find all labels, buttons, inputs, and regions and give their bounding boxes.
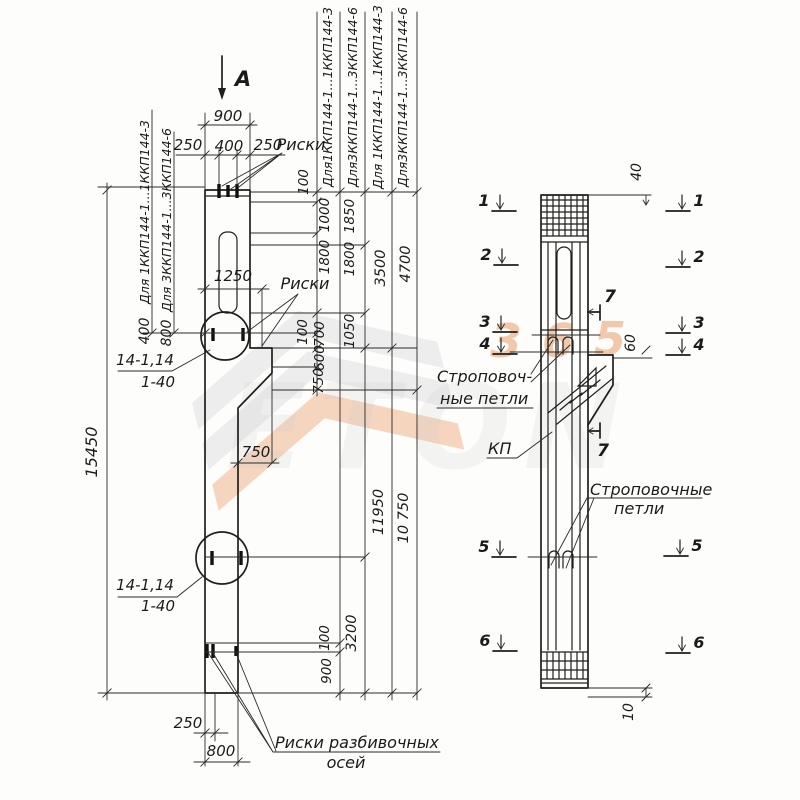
dim-600: 600 — [312, 345, 328, 371]
section-marker-digit: 5 — [478, 537, 489, 556]
drawing-sheet: ETON 365 — [0, 0, 800, 800]
label-lifting-loops-1a: Строповоч- — [437, 367, 532, 386]
dim-1250: 1250 — [214, 267, 252, 285]
section-marker-5-right: 5 — [664, 536, 703, 556]
section-marker-digit: 3 — [479, 312, 490, 331]
dim-top-250-left: 250 — [174, 136, 203, 154]
section-marker-digit: 4 — [478, 334, 490, 353]
dim-1000: 1000 — [317, 198, 333, 232]
riski-top-leaders — [222, 153, 282, 189]
section-marker-2-left: 2 — [480, 245, 518, 265]
left-guideline-1-value: 400 — [137, 318, 153, 345]
dim-100-top: 100 — [296, 169, 312, 195]
chain-label-4: Для3ККП144-1...3ККП144-6 — [395, 7, 410, 188]
dim-10750: 10 750 — [396, 493, 412, 544]
label-riski-middle: Риски — [281, 274, 330, 293]
dim-top-400: 400 — [215, 137, 244, 155]
section-marker-6-left: 6 — [479, 631, 517, 651]
section-7-label-b: 7 — [597, 441, 609, 461]
section-7-label-a: 7 — [604, 287, 616, 307]
dim-40-graphics — [588, 195, 651, 205]
bottom-risk-marks — [207, 644, 236, 658]
dim-bottom-800: 800 — [207, 742, 236, 760]
watermark-digit: 3 — [490, 314, 522, 368]
label-riski-axes-line2: осей — [327, 753, 366, 772]
section-marker-digit: 1 — [478, 191, 489, 210]
watermark: ETON 365 — [176, 280, 634, 511]
section-marker-digit: 3 — [693, 313, 704, 332]
section-marker-digit: 6 — [693, 633, 704, 652]
section-marker-4-right: 4 — [666, 335, 705, 355]
left-guideline-2-label: Для 3ККП144-1...3ККП144-6 — [159, 128, 174, 313]
dim-11950: 11950 — [371, 489, 387, 535]
section-marker-digit: 5 — [691, 536, 702, 555]
section-marker-3-right: 3 — [666, 313, 705, 333]
label-lifting-loops-2a: Строповочные — [590, 480, 712, 499]
dim-900-bottom: 900 — [319, 658, 335, 684]
label-lifting-loops-1b: ные петли — [440, 389, 528, 408]
section-marker-5-left: 5 — [478, 537, 516, 557]
detail-2-scale: 1-40 — [141, 597, 175, 615]
left-guideline-1-label: Для 1ККП144-1...1ККП144-3 — [137, 120, 152, 305]
dim-1800-b: 1800 — [342, 242, 358, 276]
chain-label-1: Для1ККП144-1...1ККП144-3 — [320, 7, 335, 188]
dim-100-mid: 100 — [295, 319, 311, 345]
view-direction-arrow — [218, 56, 226, 100]
dim-overall-15450: 15450 — [82, 427, 101, 478]
chain-label-2: Для3ККП144-1...3ККП144-6 — [345, 7, 360, 188]
section-marker-digit: 4 — [692, 335, 704, 354]
section-marker-digit: 2 — [480, 245, 491, 264]
section-marker-2-right: 2 — [666, 247, 705, 267]
dim-100-bottom: 100 — [317, 625, 333, 651]
dim-1800-a: 1800 — [317, 240, 333, 274]
dim-console-750: 750 — [242, 443, 271, 461]
dim-bottom-250: 250 — [174, 714, 203, 732]
detail-2-mark: 14-1,14 — [116, 576, 174, 594]
label-kp: КП — [488, 439, 511, 458]
detail-1-mark: 14-1,14 — [116, 351, 174, 369]
bottom-reinforcement-ties — [541, 652, 588, 679]
side-view-slot — [557, 247, 571, 319]
section-marker-1-right: 1 — [666, 191, 705, 211]
dim-40: 40 — [629, 163, 645, 181]
section-marker-digit: 1 — [693, 191, 704, 210]
dim-4700: 4700 — [398, 246, 414, 283]
section-marker-digit: 2 — [693, 247, 704, 266]
section-marker-digit: 6 — [479, 631, 490, 650]
label-lifting-loops-2b: петли — [614, 499, 664, 518]
column-drawing-canvas: ETON 365 — [0, 0, 800, 800]
section-marker-6-right: 6 — [666, 633, 705, 653]
label-riski-axes-line1: Риски разбивочных — [275, 733, 439, 752]
detail-1-scale: 1-40 — [141, 373, 175, 391]
head-reinforcement-mesh — [541, 196, 588, 236]
watermark-brand-text: ETON — [226, 358, 634, 496]
chain-label-3: Для 1ККП144-1...1ККП144-3 — [370, 5, 385, 190]
dim-60: 60 — [623, 334, 639, 352]
dim-1050: 1050 — [342, 314, 358, 348]
dim-10: 10 — [621, 703, 637, 721]
dim-3500: 3500 — [373, 250, 389, 287]
dim-750-chain: 750 — [311, 368, 327, 394]
dim-1850: 1850 — [342, 199, 358, 233]
dim-3200: 3200 — [344, 615, 360, 652]
view-direction-label: А — [233, 67, 251, 91]
dim-700: 700 — [312, 321, 328, 347]
dim-10-graphics — [588, 684, 652, 701]
label-riski-top: Риски — [277, 135, 326, 154]
dim-top-900: 900 — [214, 107, 243, 125]
section-marker-1-left: 1 — [478, 191, 516, 211]
left-guideline-2-value: 800 — [159, 320, 175, 347]
